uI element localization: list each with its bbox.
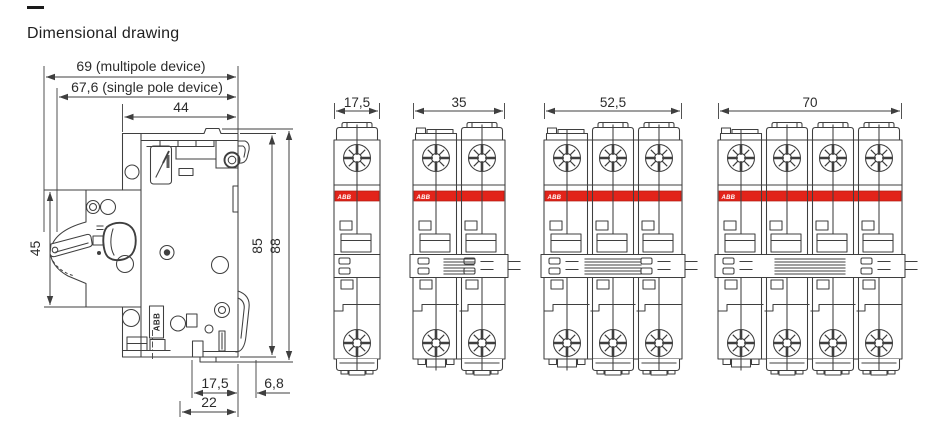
dim-depth-housing: 44 [123, 99, 237, 132]
abb-logo-text: ABB [416, 195, 431, 201]
width-dim-label: 70 [802, 95, 817, 110]
dim-depth-single-pole: 67,6 (single pole device) [57, 79, 236, 232]
width-dim-label: 52,5 [600, 95, 626, 110]
dim-label-44: 44 [173, 99, 189, 115]
abb-brand-stripe [719, 191, 901, 201]
width-dim-label: 17,5 [344, 95, 370, 110]
dim-label-22: 22 [201, 394, 217, 410]
dim-label-88: 88 [267, 238, 283, 254]
abb-logo-text: ABB [337, 195, 352, 201]
front-view-2-pole: 35 ABB [410, 95, 520, 375]
dim-label-69: 69 (multipole device) [76, 58, 205, 74]
dim-base-rear: 6,8 [228, 360, 290, 398]
svg-text:ABB: ABB [153, 313, 162, 332]
abb-logo-text: ABB [547, 195, 562, 201]
din-rail-clip [233, 141, 249, 352]
toggle-lever [50, 223, 136, 276]
torque-marking [167, 155, 170, 168]
abb-moulded-label: ABB [150, 306, 164, 338]
width-dim-label: 35 [451, 95, 466, 110]
drawing-svg: 69 (multipole device) 67,6 (single pole … [0, 0, 938, 445]
dim-label-45: 45 [27, 241, 43, 257]
screwdriver-icon [151, 146, 172, 184]
side-view: 69 (multipole device) 67,6 (single pole … [27, 58, 293, 417]
dimensional-drawing-page: { "title": "Dimensional drawing", "color… [0, 0, 938, 445]
front-view-1-pole: 17,5 ABB [334, 95, 380, 375]
dim-label-67-6: 67,6 (single pole device) [71, 79, 223, 95]
front-view-4-pole: 70 ABB [715, 95, 917, 375]
dim-base-total: 22 [180, 394, 236, 417]
dim-label-17-5: 17,5 [201, 375, 228, 391]
dim-label-6-8: 6,8 [264, 375, 284, 391]
abb-logo-text: ABB [721, 195, 736, 201]
dim-label-85: 85 [249, 238, 265, 254]
front-view-3-pole: 52,5 ABB [541, 95, 697, 375]
